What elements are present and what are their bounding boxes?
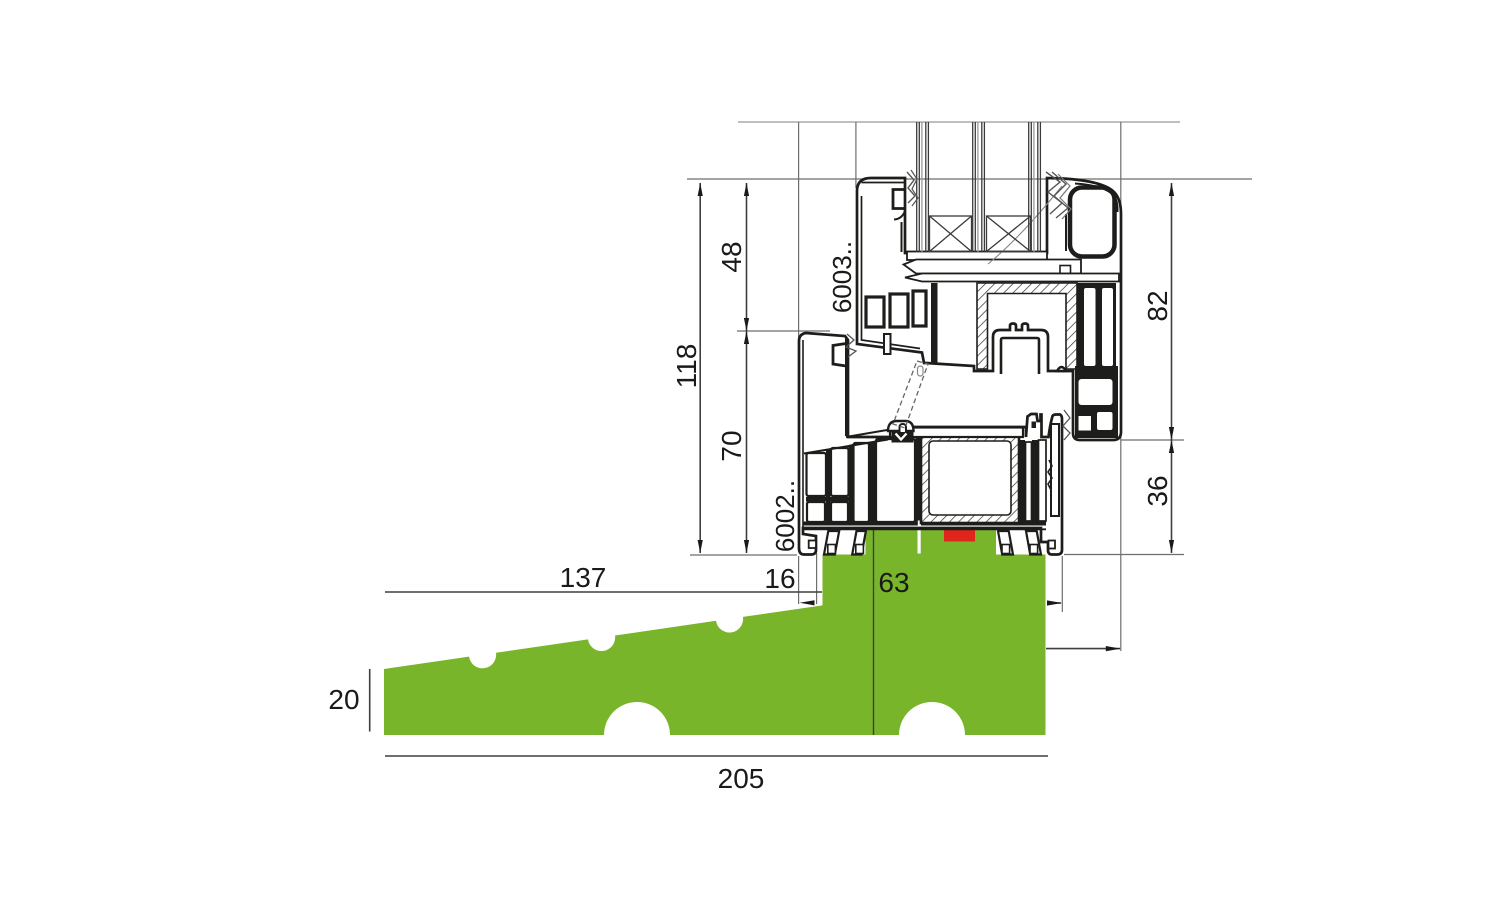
svg-text:82: 82 [1142,290,1173,321]
svg-text:70: 70 [716,430,747,461]
svg-text:6002..: 6002.. [770,480,800,552]
svg-text:205: 205 [718,763,765,794]
svg-text:48: 48 [716,241,747,272]
svg-text:16: 16 [764,563,795,594]
svg-text:63: 63 [878,567,909,598]
svg-text:20: 20 [328,684,359,715]
svg-text:36: 36 [1142,475,1173,506]
svg-text:118: 118 [671,344,702,389]
svg-text:6003..: 6003.. [827,241,857,313]
svg-text:137: 137 [560,562,607,593]
